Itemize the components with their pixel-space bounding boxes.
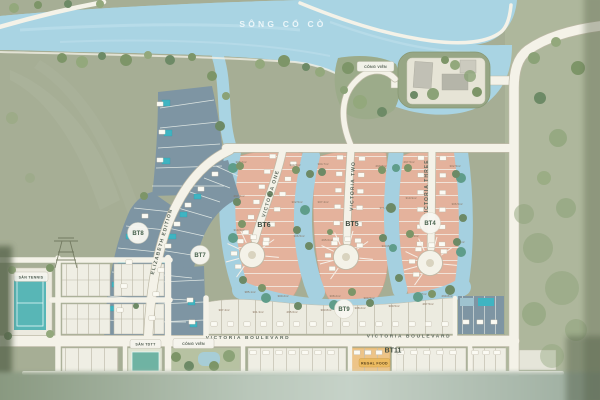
block-badge-bt9: BT9 — [335, 300, 354, 319]
svg-text:297.5m²: 297.5m² — [233, 194, 244, 198]
tennis-label: SÂN TENNIS — [14, 272, 48, 282]
street-label-boulevard-right: VICTORIA BOULEVARD — [367, 334, 452, 340]
svg-text:297.5m²: 297.5m² — [403, 160, 414, 164]
svg-text:306.5m²: 306.5m² — [451, 202, 462, 206]
svg-text:385.1m²: 385.1m² — [244, 290, 255, 294]
svg-text:295.6m²: 295.6m² — [321, 238, 332, 242]
svg-text:302.5m²: 302.5m² — [449, 164, 460, 168]
svg-text:300.2m²: 300.2m² — [277, 294, 288, 298]
svg-text:CÔNG VIÊN: CÔNG VIÊN — [182, 341, 205, 346]
block-label-bt11: BT11 — [385, 348, 402, 355]
svg-text:301.3m²: 301.3m² — [252, 310, 263, 314]
river-label: SÔNG CỔ CÒ — [239, 18, 326, 29]
block-badge-bt8: BT8 — [128, 223, 149, 244]
svg-text:310.9m²: 310.9m² — [405, 196, 416, 200]
map-canvas: 308.2m²300.5m²297.5m²302.5m²310.9m²306.5… — [0, 0, 600, 400]
svg-text:304.7m²: 304.7m² — [317, 162, 328, 166]
boulevard-bottom-row — [62, 348, 556, 374]
svg-text:295.6m²: 295.6m² — [286, 310, 297, 314]
svg-text:310.9m²: 310.9m² — [233, 228, 244, 232]
svg-text:SÂN TENNIS: SÂN TENNIS — [19, 275, 44, 280]
bridge-right — [488, 76, 512, 85]
master-plan-map: 308.2m²300.5m²297.5m²302.5m²310.9m²306.5… — [0, 0, 600, 400]
sports-label: SÂN TDTT — [130, 340, 161, 349]
svg-text:308.2m²: 308.2m² — [354, 306, 365, 310]
svg-text:297.5m²: 297.5m² — [422, 302, 433, 306]
block-badge-bt4: BT4 — [420, 213, 441, 234]
svg-text:306.5m²: 306.5m² — [293, 234, 304, 238]
svg-text:SÂN TDTT: SÂN TDTT — [135, 342, 156, 347]
block-label-bt6: BT6 — [257, 222, 270, 229]
svg-text:307.4m²: 307.4m² — [317, 200, 328, 204]
park-label-top: CÔNG VIÊN — [357, 62, 394, 72]
block-label-bt5: BT5 — [345, 221, 358, 228]
block-badge-bt7: BT7 — [191, 246, 210, 265]
svg-text:308.2m²: 308.2m² — [329, 294, 340, 298]
sports-field — [128, 348, 162, 374]
svg-text:REGAL FOOD: REGAL FOOD — [361, 362, 388, 366]
svg-text:BT4: BT4 — [424, 221, 436, 227]
street-label-victoria-three: VICTORIA THREE — [424, 159, 430, 216]
svg-text:307.4m²: 307.4m² — [218, 308, 229, 312]
svg-text:CÔNG VIÊN: CÔNG VIÊN — [364, 64, 387, 69]
svg-text:302.5m²: 302.5m² — [291, 200, 302, 204]
svg-text:303.8m²: 303.8m² — [320, 308, 331, 312]
park-label-bottom: CÔNG VIÊN — [173, 339, 214, 349]
street-label-boulevard-left: VICTORIA BOULEVARD — [206, 335, 291, 341]
svg-text:300.5m²: 300.5m² — [388, 304, 399, 308]
svg-text:BT8: BT8 — [132, 231, 144, 237]
svg-text:BT9: BT9 — [338, 307, 350, 313]
food-store-label: REGAL FOOD — [359, 359, 390, 368]
svg-text:BT7: BT7 — [194, 253, 206, 259]
